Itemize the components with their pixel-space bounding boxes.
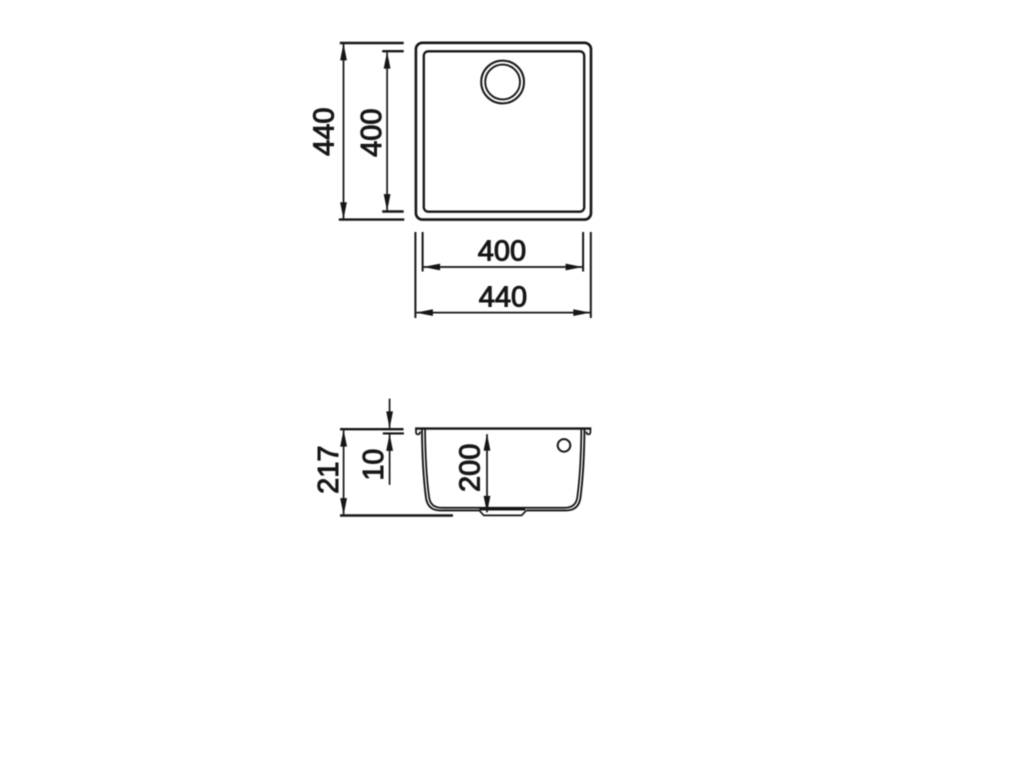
svg-text:200: 200 bbox=[455, 444, 487, 492]
svg-text:400: 400 bbox=[356, 109, 388, 157]
svg-text:440: 440 bbox=[479, 281, 527, 313]
svg-text:10: 10 bbox=[358, 449, 390, 481]
svg-text:400: 400 bbox=[478, 235, 526, 267]
svg-text:217: 217 bbox=[313, 446, 345, 494]
svg-text:440: 440 bbox=[309, 108, 341, 156]
